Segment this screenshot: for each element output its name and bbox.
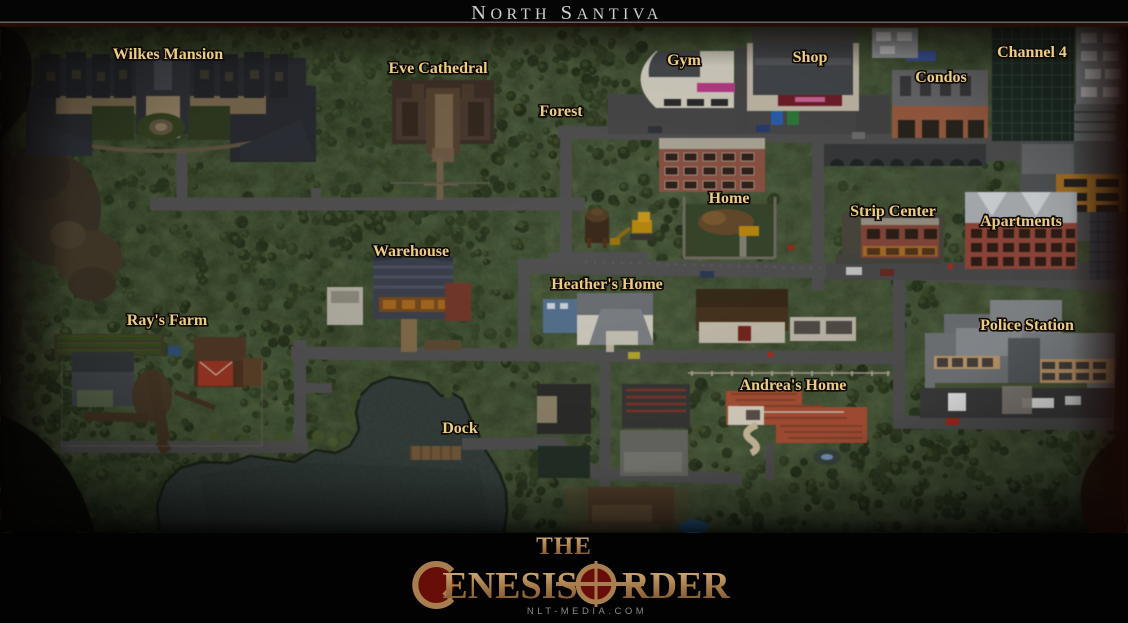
svg-text:Dock: Dock — [442, 420, 478, 437]
svg-text:RDER: RDER — [622, 565, 730, 607]
svg-text:Wilkes Mansion: Wilkes Mansion — [113, 46, 224, 63]
svg-text:THE: THE — [536, 533, 592, 560]
svg-text:Andrea's Home: Andrea's Home — [740, 377, 847, 394]
svg-text:Apartments: Apartments — [980, 213, 1062, 230]
svg-text:Police Station: Police Station — [980, 317, 1074, 334]
svg-text:NLT-MEDIA.COM: NLT-MEDIA.COM — [527, 606, 647, 617]
svg-text:ENESIS: ENESIS — [442, 565, 577, 607]
svg-text:Channel 4: Channel 4 — [997, 44, 1067, 61]
svg-text:Strip Center: Strip Center — [850, 203, 936, 220]
svg-text:Warehouse: Warehouse — [373, 243, 449, 260]
svg-text:Ray's Farm: Ray's Farm — [127, 312, 208, 329]
svg-text:NORTH SANTIVA: NORTH SANTIVA — [471, 2, 663, 24]
svg-text:Shop: Shop — [793, 49, 828, 66]
svg-text:Home: Home — [709, 190, 750, 207]
svg-text:Forest: Forest — [539, 103, 583, 120]
svg-text:Condos: Condos — [915, 69, 967, 86]
svg-text:Gym: Gym — [667, 52, 701, 69]
svg-text:Eve Cathedral: Eve Cathedral — [388, 60, 488, 77]
svg-text:Heather's Home: Heather's Home — [551, 276, 663, 293]
